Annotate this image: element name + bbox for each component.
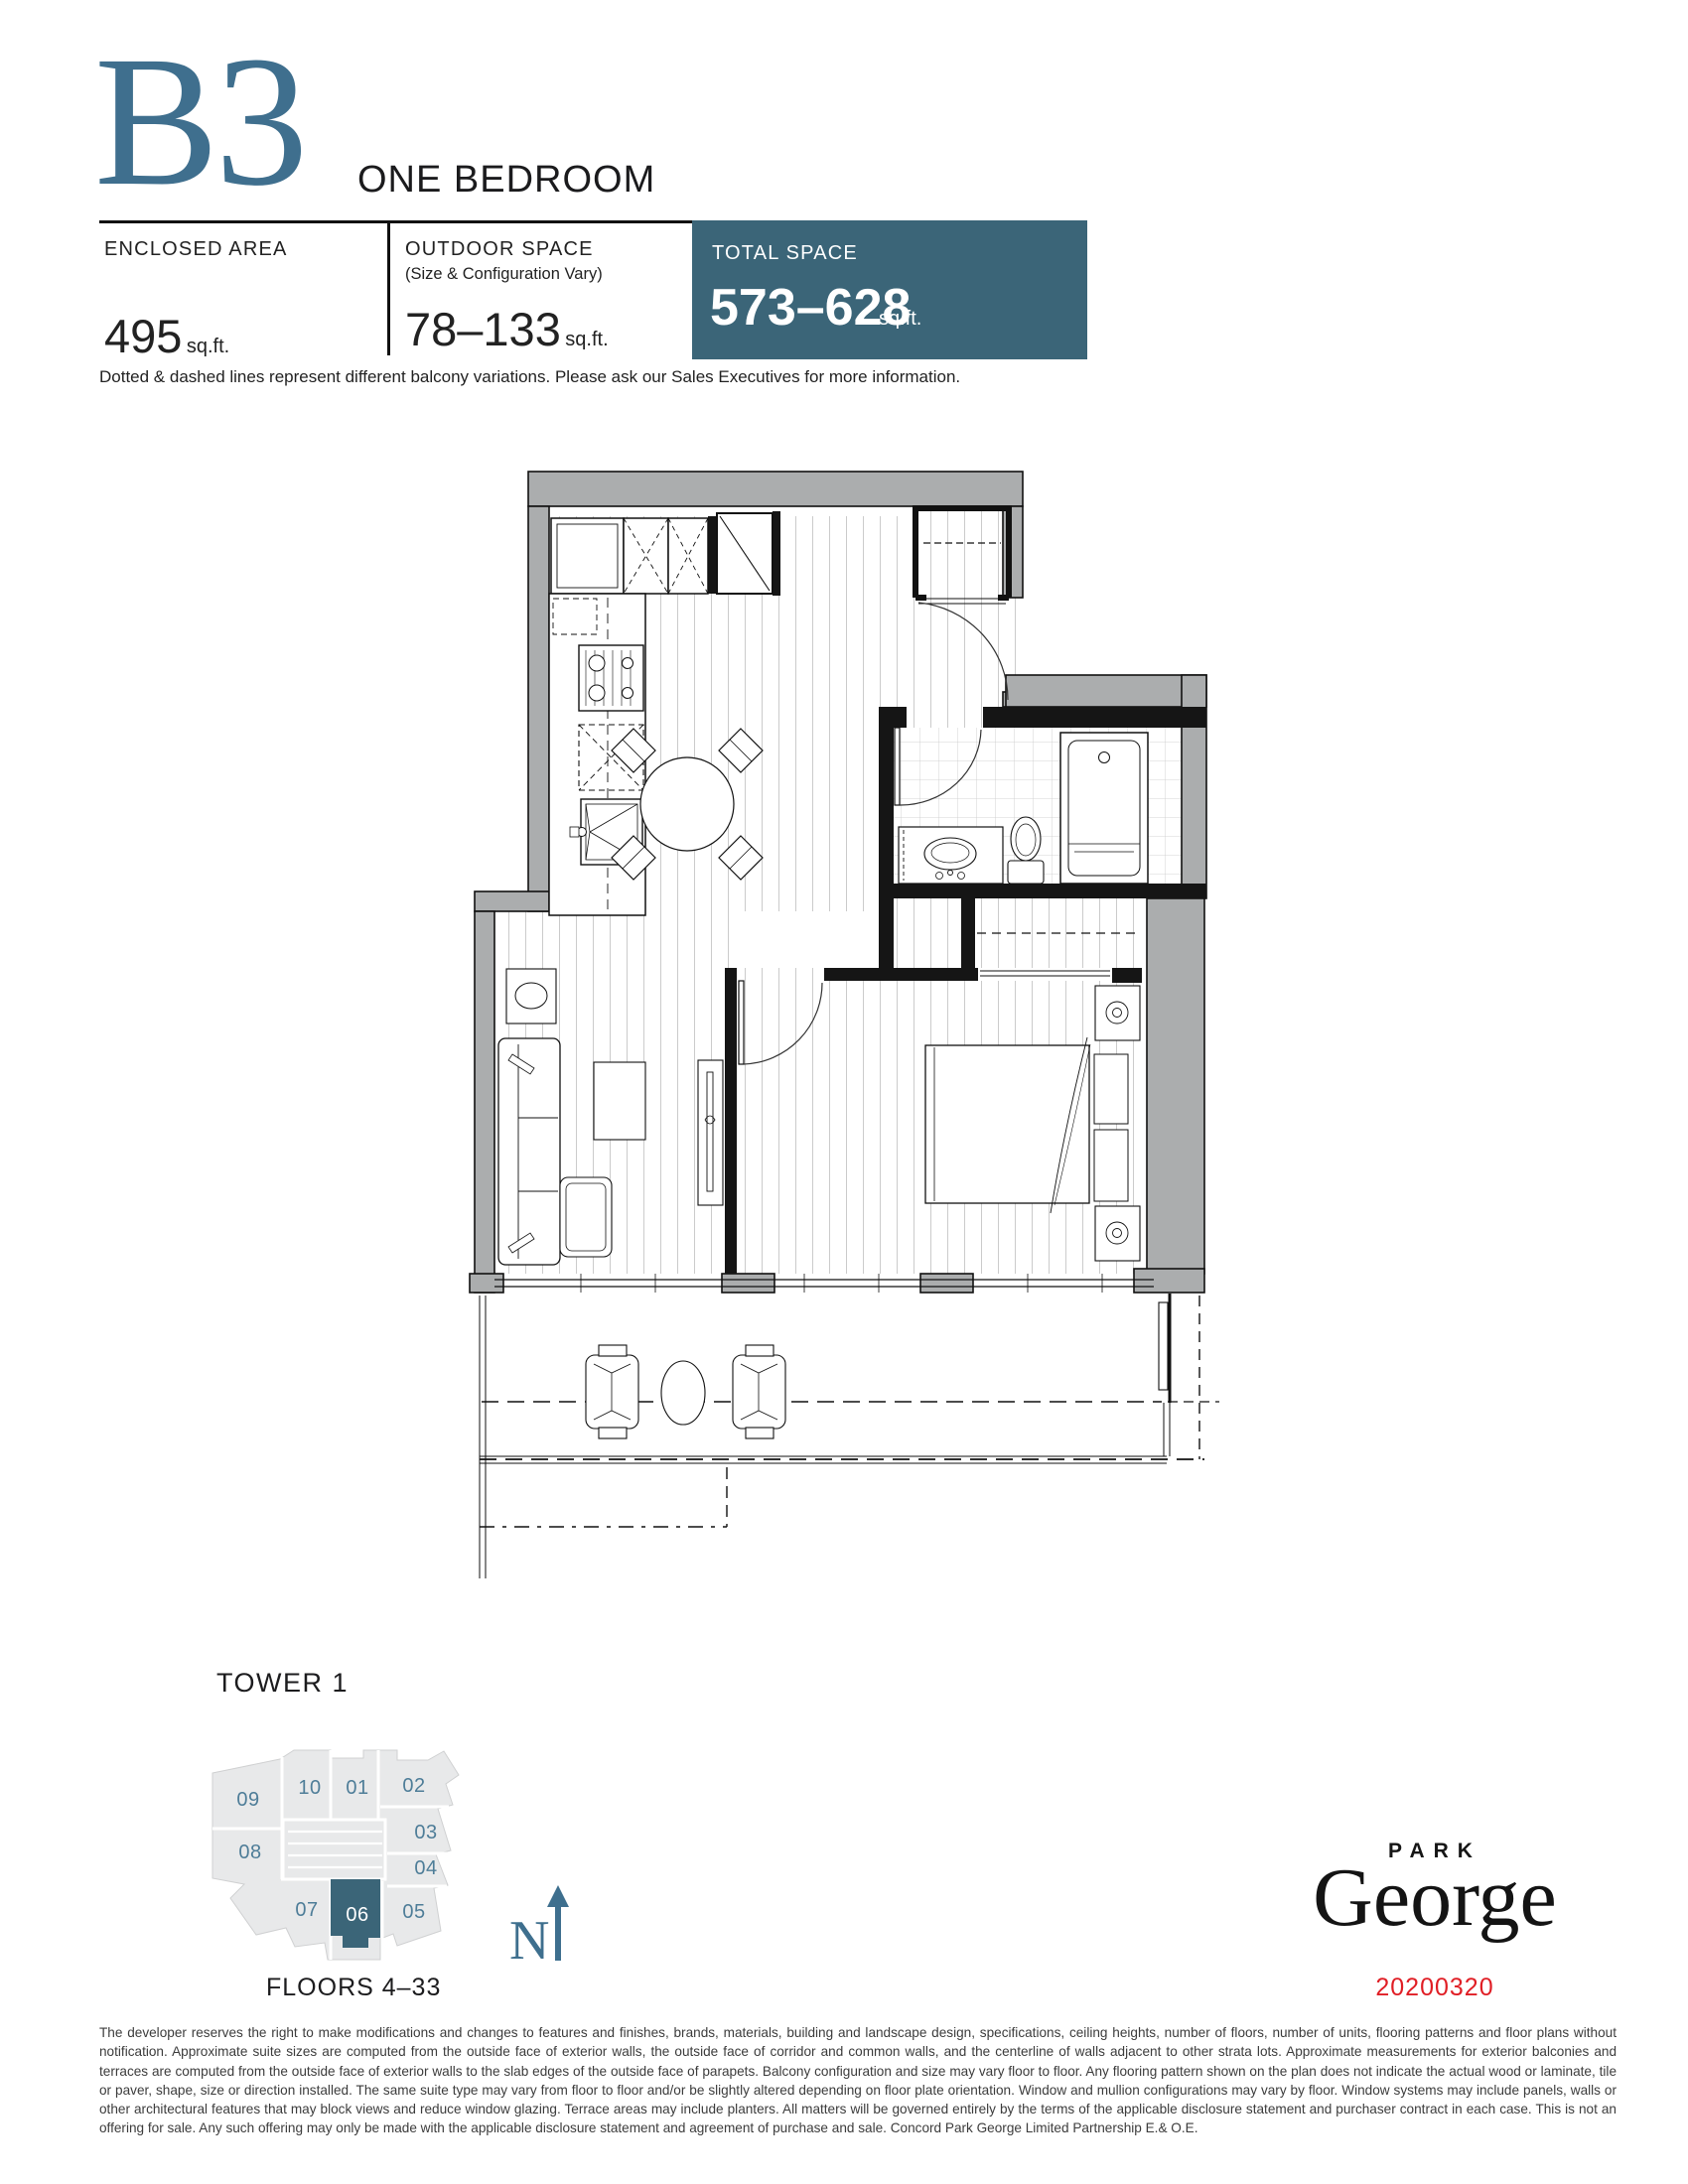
balcony-chair (586, 1345, 638, 1438)
keyplate-unit-06: 06 (341, 1904, 374, 1927)
keyplate-unit-07: 07 (290, 1899, 324, 1922)
bedroom-door (739, 981, 744, 1064)
cooktop (579, 645, 643, 711)
balcony-note: Dotted & dashed lines represent differen… (99, 367, 960, 387)
stat-enclosed-value: 495 (104, 310, 182, 362)
floorplan-sheet: B3 ONE BEDROOM ENCLOSED AREA 495 sq.ft. … (0, 0, 1688, 2184)
north-arrow-icon: N (501, 1881, 581, 1976)
stats-top-rule (99, 220, 692, 223)
bathroom-door (895, 728, 900, 805)
bathtub (1060, 733, 1148, 884)
stat-enclosed-label: ENCLOSED AREA (104, 238, 382, 261)
stat-enclosed-unit: sq.ft. (187, 336, 229, 357)
keyplate-unit-03: 03 (409, 1822, 443, 1844)
stat-total-box: TOTAL SPACE 573–628 sq.ft. (692, 220, 1087, 359)
fridge (557, 524, 618, 588)
keyplate-unit-05: 05 (397, 1901, 431, 1924)
floor-plan (467, 459, 1221, 1590)
sofa (498, 1038, 560, 1265)
brand-george: George (1269, 1854, 1601, 1942)
stat-outdoor-label: OUTDOOR SPACE (405, 238, 683, 261)
pillow (1094, 1054, 1128, 1124)
pillow (1094, 1130, 1128, 1201)
keyplate-floors-label: FLOORS 4–33 (266, 1974, 441, 2002)
stats-divider (387, 220, 390, 355)
balcony-panel (1159, 1302, 1168, 1390)
coffee-table (594, 1062, 645, 1140)
nightstand-bottom (1095, 1206, 1140, 1261)
stat-outdoor-sublabel: (Size & Configuration Vary) (405, 265, 683, 284)
dining-table (640, 757, 734, 851)
stat-outdoor: OUTDOOR SPACE (Size & Configuration Vary… (405, 238, 683, 356)
stat-outdoor-value: 78–133 (405, 303, 561, 355)
ottoman (560, 1177, 612, 1257)
plan-code: B3 (94, 28, 304, 214)
stat-total-label: TOTAL SPACE (712, 242, 858, 265)
keyplate-tower-title: TOWER 1 (216, 1668, 349, 1699)
keyplate-unit-01: 01 (341, 1777, 374, 1800)
north-letter: N (509, 1910, 549, 1972)
tv-console (698, 1060, 723, 1205)
keyplate-unit-09: 09 (231, 1789, 265, 1812)
legal-disclaimer: The developer reserves the right to make… (99, 2023, 1617, 2138)
side-table (506, 969, 556, 1024)
vanity-sink (899, 827, 1003, 884)
balcony (480, 1294, 1219, 1578)
revision-date: 20200320 (1360, 1974, 1509, 2002)
keyplate-unit-08: 08 (233, 1842, 267, 1864)
keyplate-unit-02: 02 (397, 1775, 431, 1798)
stat-enclosed: ENCLOSED AREA 495 sq.ft. (104, 238, 382, 363)
keyplate-unit-10: 10 (293, 1777, 327, 1800)
stat-total-unit: sq.ft. (879, 308, 921, 331)
toilet (1008, 817, 1044, 884)
plan-name: ONE BEDROOM (357, 159, 655, 202)
keyplate-unit-04: 04 (409, 1857, 443, 1880)
balcony-table (661, 1361, 705, 1425)
stat-outdoor-unit: sq.ft. (565, 329, 608, 350)
balcony-chair (733, 1345, 785, 1438)
nightstand-top (1095, 986, 1140, 1040)
window-wall (494, 1274, 1154, 1293)
